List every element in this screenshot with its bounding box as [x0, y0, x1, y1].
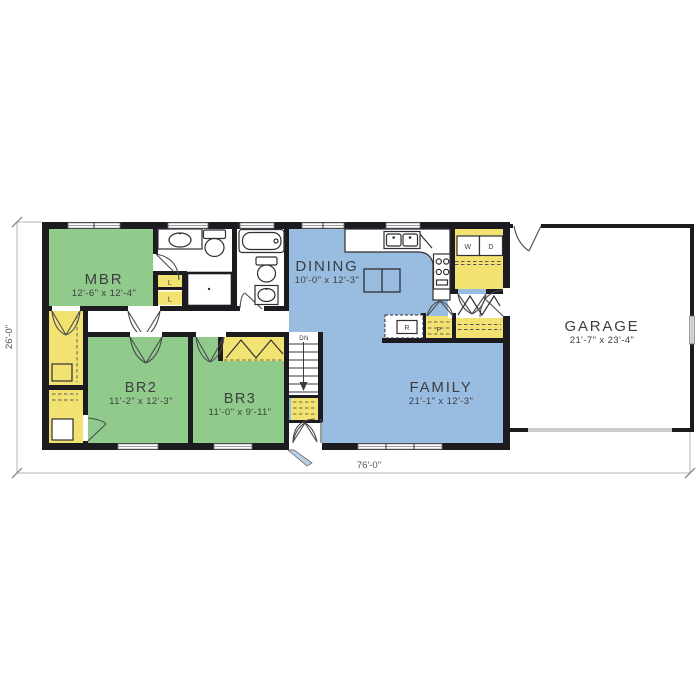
- room-dining-label: DINING: [295, 258, 358, 275]
- room-family-dims: 21'-1" x 12'-3": [409, 396, 473, 407]
- bathtub: [239, 230, 284, 253]
- window-main-bath: [240, 223, 274, 228]
- main-bath-toilet: [256, 257, 277, 282]
- understair-closet: [291, 397, 318, 420]
- window-br2: [118, 444, 158, 449]
- floor-plan-drawing: MBR 12'-6" x 12'-4" BR2 11'-2" x 12'-3" …: [0, 0, 700, 700]
- front-door-leaf: [288, 450, 312, 466]
- window-garage: [690, 316, 694, 344]
- room-family-label: FAMILY: [409, 379, 472, 396]
- coat-closet: [456, 318, 503, 340]
- dryer-label: D: [488, 244, 493, 251]
- dining-table: [364, 269, 400, 292]
- window-family: [358, 444, 442, 449]
- main-bath-sink: [255, 286, 278, 305]
- washer-label: W: [465, 244, 472, 251]
- window-kitchen: [386, 223, 420, 228]
- room-br2-dims: 11'-2" x 12'-3": [109, 396, 173, 407]
- window-master-bath: [168, 223, 208, 228]
- kitchen-double-sink: [384, 232, 420, 249]
- overall-width-label: 76'-0": [357, 460, 381, 471]
- window-dining: [302, 223, 344, 228]
- pantry-label: P: [437, 327, 442, 334]
- room-garage-dims: 21'-7" x 23'-4": [570, 335, 634, 346]
- stairs-down-label: DN: [299, 335, 309, 342]
- room-garage-label: GARAGE: [565, 318, 640, 335]
- room-br3-dims: 11'-0" x 9'-11": [208, 407, 271, 418]
- master-bath-vanity: [158, 229, 202, 249]
- room-dining-dims: 10'-0" x 12'-3": [295, 275, 359, 286]
- garage-door-opening: [528, 428, 672, 432]
- linen-closet-2-label: L: [168, 297, 172, 304]
- room-br2-label: BR2: [125, 380, 157, 396]
- window-mbr: [68, 223, 120, 228]
- master-bath-toilet: [204, 230, 226, 257]
- room-mbr-label: MBR: [85, 271, 124, 288]
- master-bath-shower: [187, 273, 232, 306]
- floor-plan-page: MBR 12'-6" x 12'-4" BR2 11'-2" x 12'-3" …: [0, 0, 700, 700]
- br2-closet-drawers: [52, 419, 73, 440]
- br3-closet: [223, 337, 284, 361]
- overall-depth-label: 26'-0": [4, 325, 15, 349]
- stove-fixture: [434, 254, 451, 289]
- linen-closet-1-label: L: [168, 280, 172, 287]
- refrigerator-label: R: [404, 325, 409, 332]
- window-br3: [214, 444, 252, 449]
- room-br3-label: BR3: [224, 391, 256, 407]
- room-mbr-dims: 12'-6" x 12'-4": [72, 288, 136, 299]
